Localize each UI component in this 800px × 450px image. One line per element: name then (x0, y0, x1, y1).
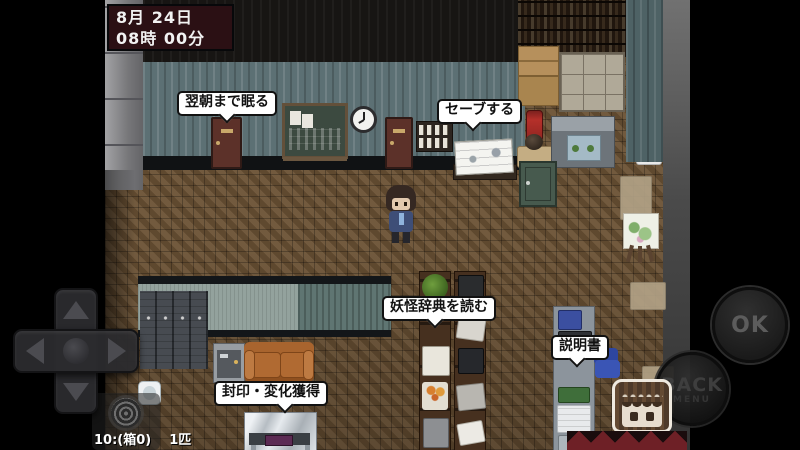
bubble-dictionary[interactable]: 妖怪辞典を読む (382, 296, 496, 321)
datetime-box: 8月 24日 08時 00分 (107, 4, 234, 51)
bubble-manual[interactable]: 説明書 (551, 335, 609, 360)
safe-keypad-icon (234, 360, 238, 364)
wall-clock-icon (350, 106, 377, 133)
counter-unit: 1匹 (169, 429, 191, 448)
player-leg (392, 232, 399, 243)
capture-counter: 10:(箱0) 1匹 (94, 429, 244, 448)
green-book-icon (558, 387, 590, 403)
dpad-down-icon[interactable] (63, 383, 89, 401)
door-plate (221, 129, 233, 133)
sofa-arm (244, 350, 255, 380)
player-eye (395, 202, 398, 206)
sink-window (567, 135, 601, 161)
sofa (244, 342, 314, 382)
lockers (140, 291, 208, 369)
player-eye (404, 202, 407, 206)
cardboard-box (518, 46, 559, 76)
ok-button[interactable]: OK (712, 287, 788, 363)
dpad (13, 288, 139, 414)
easel (622, 213, 660, 265)
bubble-sleep[interactable]: 翌朝まで眠る (177, 91, 277, 116)
dpad-center-button[interactable] (63, 338, 89, 364)
roof-tile-banner (567, 431, 687, 450)
door-plate (393, 129, 405, 133)
dpad-right-icon[interactable] (108, 338, 126, 364)
player-tie (399, 213, 404, 225)
plant-icon (572, 145, 579, 152)
papers-icon (456, 383, 487, 412)
portrait-face (622, 403, 662, 427)
portrait-eye (630, 412, 638, 421)
open-book-icon[interactable] (422, 346, 450, 376)
kitchen-counter (551, 116, 615, 168)
easel-leg (638, 246, 642, 263)
counter-top (552, 117, 614, 131)
cardboard-box (518, 76, 559, 106)
chalk-tray (283, 157, 347, 161)
time-text: 08時 00分 (116, 28, 232, 49)
dpad-up-icon[interactable] (63, 301, 89, 319)
display-case[interactable] (244, 412, 317, 450)
clock-hour-hand (358, 119, 364, 124)
wall-book-shelf (416, 121, 453, 152)
counter-count: 10:(箱0) (94, 429, 151, 448)
sofa-cushion (252, 352, 281, 378)
floor-hatch-door (519, 161, 557, 207)
blue-binder-icon[interactable] (558, 310, 582, 330)
safe (213, 343, 245, 383)
kettle-icon (525, 134, 543, 150)
case-leg (305, 445, 310, 450)
bubble-seal[interactable]: 封印・変化獲得 (214, 381, 328, 406)
shoji-panels (559, 52, 625, 112)
flower-pot-icon (422, 382, 448, 410)
dpad-left-icon[interactable] (26, 338, 44, 364)
character-portrait (612, 379, 672, 433)
case-leg (251, 445, 256, 450)
office-chair-seat (595, 360, 620, 378)
office-desk (553, 306, 595, 450)
hairpin-icon (621, 391, 663, 397)
locker-handles (140, 315, 208, 321)
hatch-knob-icon (526, 181, 530, 185)
portrait-eye (646, 412, 654, 421)
safe-display (220, 354, 228, 358)
wallpaper-right (626, 0, 666, 162)
portrait-bangs (622, 402, 662, 411)
date-text: 8月 24日 (116, 7, 232, 28)
blackboard (282, 103, 348, 159)
second-door[interactable] (385, 117, 413, 169)
plant-icon (587, 145, 594, 152)
save-sketchbook[interactable] (454, 139, 514, 176)
sealed-item (265, 435, 293, 446)
envelope-icon (456, 420, 485, 446)
pinned-paper (290, 111, 301, 125)
bubble-save[interactable]: セーブする (437, 99, 522, 124)
painting-canvas (623, 213, 659, 249)
sofa-arm (303, 350, 314, 380)
chalk-writing (289, 128, 341, 150)
lower-wallpaper-dark (298, 284, 391, 334)
book-stack (423, 418, 449, 448)
menu-label: MENU (673, 395, 711, 405)
black-book-icon (458, 348, 484, 374)
door-knob-icon (390, 141, 394, 145)
pinned-paper (302, 114, 313, 128)
book-row (419, 125, 450, 135)
ok-label: OK (731, 313, 769, 338)
bedroom-door[interactable] (211, 117, 242, 169)
game-viewport (105, 0, 690, 450)
player-leg (403, 232, 410, 243)
paper-stack-icon (557, 405, 591, 433)
counter-gap (151, 429, 169, 448)
screen: 8月 24日 08時 00分 翌朝まで眠る セーブする 妖怪辞典を読む 説明書 … (0, 0, 800, 450)
player-character (383, 185, 419, 245)
floor-mat (630, 282, 666, 310)
door-knob-icon (216, 141, 220, 145)
book-row (419, 138, 450, 148)
